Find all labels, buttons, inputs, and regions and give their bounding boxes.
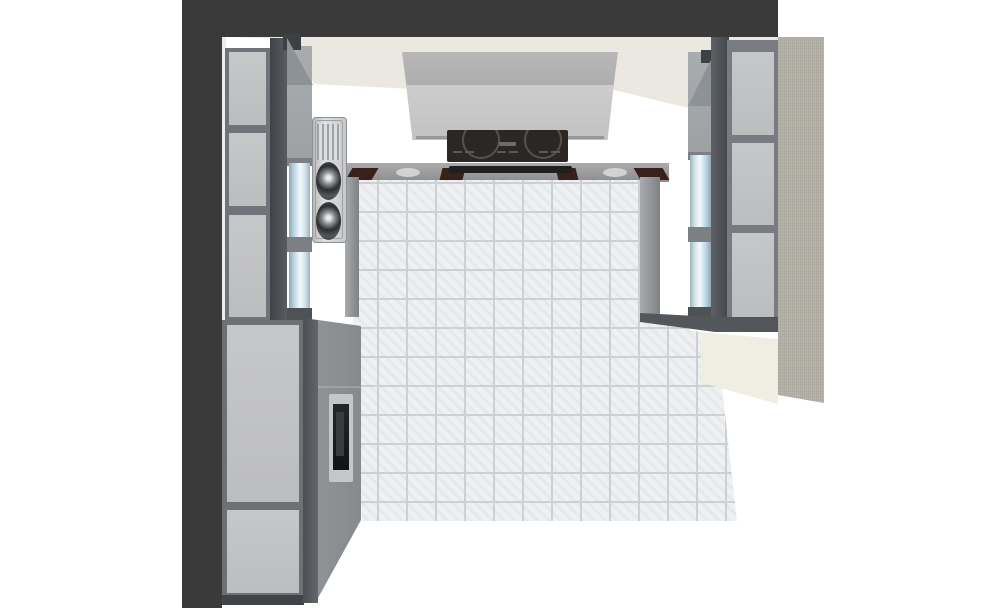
- counter-reflection: [396, 168, 420, 177]
- left-glass-door-lower: [289, 252, 310, 308]
- range-hood-chimney[interactable]: [402, 52, 618, 85]
- cabinet-door-panel: [229, 52, 266, 125]
- left-glass-cabinet[interactable]: [287, 46, 312, 322]
- kitchen-render-viewport: [0, 0, 1000, 608]
- back-counter-edge[interactable]: [345, 163, 669, 182]
- floor-tiles[interactable]: [345, 179, 739, 522]
- hob-control-mark: [453, 151, 462, 153]
- left-tall-cabinet-lower[interactable]: [222, 320, 304, 605]
- counter-reflection: [603, 168, 627, 177]
- cabinet-door-panel: [229, 133, 266, 206]
- hob-front-edge: [449, 166, 572, 173]
- hob-control-mark: [509, 151, 518, 153]
- counter-side-right: [640, 177, 660, 317]
- right-wall-end-panel: [778, 37, 824, 405]
- sink-drainboard: [317, 124, 340, 160]
- hob-control-mark: [539, 151, 548, 153]
- oven-door-glass: [333, 404, 349, 470]
- hob-control-mark: [551, 151, 560, 153]
- cabinet-door-panel: [229, 215, 266, 317]
- oven-tower-edge: [303, 317, 318, 603]
- outer-wall-top: [182, 0, 778, 37]
- outer-wall-left: [182, 0, 222, 608]
- sink-bowl-lower: [316, 202, 341, 240]
- hob-control-mark: [465, 151, 474, 153]
- oven-door-inner: [336, 412, 344, 456]
- cabinet-door-panel: [227, 325, 299, 502]
- cabinet-door-panel: [732, 143, 774, 225]
- counter-side-left: [345, 177, 359, 317]
- left-tall-cabinet-upper[interactable]: [225, 48, 270, 320]
- cabinet-door-panel: [227, 510, 299, 593]
- oven-door[interactable]: [329, 394, 353, 482]
- cabinet-door-panel: [732, 233, 774, 317]
- left-cabinet-side-edge: [270, 38, 287, 320]
- right-tall-cabinet[interactable]: [727, 40, 778, 332]
- hob-control-mark: [497, 151, 506, 153]
- left-glass-door-upper: [289, 163, 310, 237]
- right-glass-rail: [688, 227, 713, 242]
- right-glass-door-lower: [690, 242, 711, 307]
- burner-left-icon: [462, 130, 500, 159]
- left-glass-rail: [287, 237, 312, 252]
- sink-bowl-upper: [316, 162, 341, 200]
- induction-hob[interactable]: [447, 130, 568, 162]
- right-glass-door-upper: [690, 155, 711, 227]
- burner-right-icon: [524, 130, 562, 159]
- sink-unit[interactable]: [312, 117, 347, 243]
- hob-display: [499, 142, 516, 146]
- tower-seam: [318, 386, 361, 388]
- cabinet-door-panel: [732, 52, 774, 135]
- oven-tower[interactable]: [318, 320, 361, 600]
- cabinet-plinth: [222, 595, 304, 605]
